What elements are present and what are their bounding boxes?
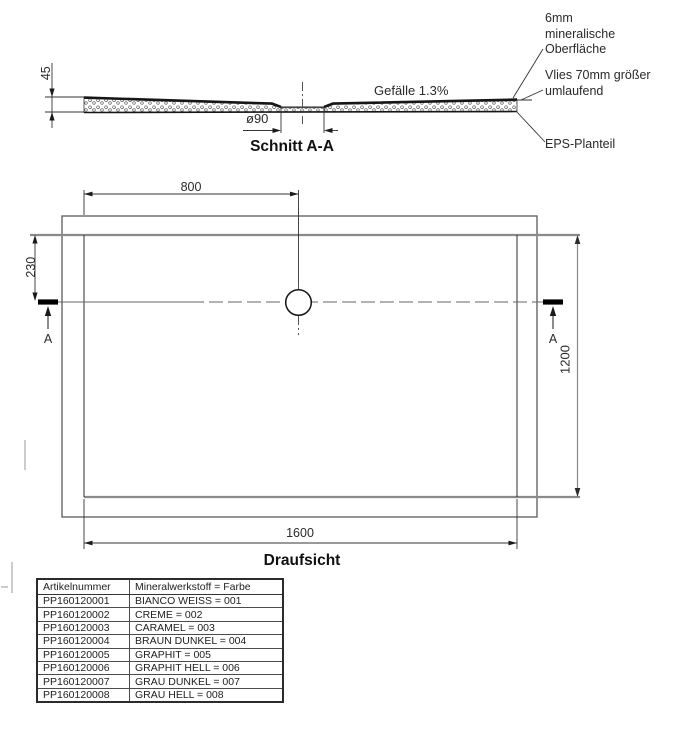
leader-eps	[516, 111, 545, 142]
section-arrow-right-head	[550, 306, 556, 316]
technical-drawing-page: 45 Gefälle 1.3% ø90 Schnitt A-A 6mm mine…	[0, 0, 679, 729]
dim-1600-arrow-left	[84, 541, 93, 546]
dim-800-arrow-left	[84, 192, 93, 197]
table-row: PP160120002 CREME = 002	[37, 608, 283, 621]
table-row: PP160120006 GRAPHIT HELL = 006	[37, 661, 283, 674]
drain-circle	[286, 290, 312, 316]
dim-90-arrow-left	[273, 128, 282, 133]
table-row: PP160120008 GRAU HELL = 008	[37, 688, 283, 702]
table-cell-artikel: PP160120003	[37, 621, 130, 634]
table-row: PP160120004 BRAUN DUNKEL = 004	[37, 635, 283, 648]
table-row: PP160120001 BIANCO WEISS = 001	[37, 595, 283, 608]
dim-drain-label: ø90	[246, 112, 268, 127]
leader-surface	[513, 49, 543, 98]
eps-bottom-line	[84, 112, 517, 113]
dim-800-label: 800	[161, 180, 221, 194]
table-row: PP160120005 GRAPHIT = 005	[37, 648, 283, 661]
section-view	[45, 49, 545, 142]
dim-45-label: 45	[39, 53, 53, 93]
leader-lines	[513, 49, 545, 142]
dim-230-arrow-top	[32, 235, 37, 244]
annotation-eps: EPS-Planteil	[545, 137, 615, 153]
table-cell-artikel: PP160120005	[37, 648, 130, 661]
table-cell-farbe: BRAUN DUNKEL = 004	[130, 635, 284, 648]
table-cell-artikel: PP160120004	[37, 635, 130, 648]
table-header-row: Artikelnummer Mineralwerkstoff = Farbe	[37, 579, 283, 595]
dim-230-arrow-bottom	[32, 293, 37, 302]
section-marker-right-label: A	[545, 332, 561, 346]
article-color-table: Artikelnummer Mineralwerkstoff = Farbe P…	[36, 578, 284, 703]
dim-1600	[84, 499, 517, 549]
table-header-artikelnummer: Artikelnummer	[37, 579, 130, 595]
plan-title: Draufsicht	[222, 552, 382, 570]
dim-1200-arrow-bottom	[575, 488, 581, 497]
section-flag-right	[543, 299, 563, 304]
table-cell-artikel: PP160120002	[37, 608, 130, 621]
table-cell-farbe: GRAU DUNKEL = 007	[130, 675, 284, 688]
table-cell-farbe: GRAPHIT HELL = 006	[130, 661, 284, 674]
table-header-mineralwerkstoff: Mineralwerkstoff = Farbe	[130, 579, 284, 595]
table-row: PP160120003 CARAMEL = 003	[37, 621, 283, 634]
table-cell-farbe: CREME = 002	[130, 608, 284, 621]
dim-1200-arrow-top	[575, 235, 581, 244]
plan-view	[30, 190, 580, 549]
leader-vlies	[521, 90, 543, 100]
table-cell-farbe: GRAPHIT = 005	[130, 648, 284, 661]
section-title: Schnitt A-A	[212, 138, 372, 156]
outer-rectangle	[62, 216, 537, 517]
dim-800-arrow-right	[290, 192, 299, 197]
table-cell-artikel: PP160120001	[37, 595, 130, 608]
table-cell-artikel: PP160120008	[37, 688, 130, 702]
slope-label: Gefälle 1.3%	[374, 84, 448, 99]
dim-90-arrow-right	[324, 128, 333, 133]
dim-45-arrow-bottom	[49, 112, 54, 121]
dim-230-label: 230	[24, 247, 38, 287]
scan-artifacts	[1, 440, 25, 593]
table-cell-artikel: PP160120007	[37, 675, 130, 688]
section-marker-left-label: A	[40, 332, 56, 346]
section-arrow-left-head	[45, 306, 51, 316]
annotation-vlies: Vlies 70mm größer umlaufend	[545, 68, 651, 99]
table-cell-farbe: BIANCO WEISS = 001	[130, 595, 284, 608]
table-row: PP160120007 GRAU DUNKEL = 007	[37, 675, 283, 688]
table-cell-farbe: GRAU HELL = 008	[130, 688, 284, 702]
dim-1600-arrow-right	[509, 541, 518, 546]
annotation-mineral-surface: 6mm mineralische Oberfläche	[545, 11, 615, 58]
dim-1600-label: 1600	[270, 526, 330, 540]
table-cell-farbe: CARAMEL = 003	[130, 621, 284, 634]
section-flag-left	[38, 299, 58, 304]
table-cell-artikel: PP160120006	[37, 661, 130, 674]
